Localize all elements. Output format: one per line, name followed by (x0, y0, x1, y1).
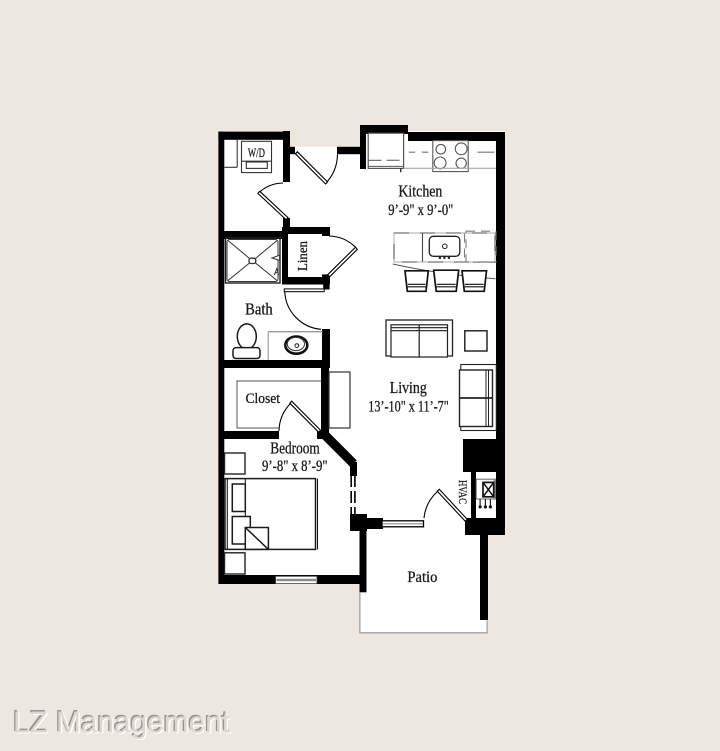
svg-text:13’-10" x 11’-7": 13’-10" x 11’-7" (368, 398, 449, 415)
svg-text:Patio: Patio (407, 569, 437, 586)
svg-text:W/D: W/D (248, 145, 265, 160)
svg-text:9’-9" x 9’-0": 9’-9" x 9’-0" (388, 202, 453, 219)
svg-text:Closet: Closet (246, 391, 281, 407)
svg-text:HVAC: HVAC (456, 480, 470, 504)
svg-text:Bath: Bath (245, 300, 273, 319)
svg-text:Bedroom: Bedroom (270, 438, 320, 457)
svg-text:9’-8" x 8’-9": 9’-8" x 8’-9" (262, 458, 328, 475)
svg-text:LZ Management: LZ Management (13, 704, 230, 739)
svg-text:Kitchen: Kitchen (398, 182, 442, 201)
svg-text:Linen: Linen (295, 241, 310, 271)
svg-text:Living: Living (390, 378, 427, 397)
